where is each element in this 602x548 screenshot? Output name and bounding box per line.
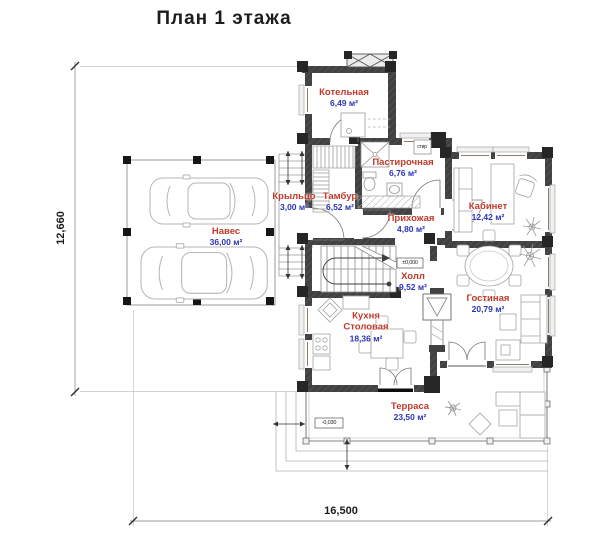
hallway-wardrobe bbox=[358, 196, 420, 208]
boiler-equipment bbox=[341, 113, 390, 137]
dimension-left: 12,660 bbox=[55, 211, 67, 245]
study-furniture bbox=[454, 164, 541, 236]
tv-stand bbox=[496, 340, 520, 360]
outdoor-sofa-corner bbox=[496, 392, 520, 406]
elevation-mark-hall: ±0,000 bbox=[402, 260, 418, 266]
desk bbox=[491, 164, 514, 224]
sink bbox=[387, 183, 402, 196]
plant bbox=[445, 401, 461, 416]
car-top-view bbox=[141, 244, 267, 303]
sofa bbox=[521, 295, 547, 343]
plant bbox=[523, 217, 541, 236]
floor-plan-page: План 1 этажа Котельная 6,49 м² Пастирочн… bbox=[0, 0, 602, 548]
terrace-furniture bbox=[445, 392, 545, 438]
desk-chair bbox=[514, 173, 538, 199]
dimension-bottom: 16,500 bbox=[324, 505, 358, 517]
fireplace bbox=[423, 288, 451, 352]
page-title: План 1 этажа bbox=[156, 8, 291, 30]
kitchen-furniture bbox=[313, 296, 416, 370]
dining-table bbox=[359, 316, 416, 370]
carport bbox=[123, 156, 275, 305]
outdoor-chair bbox=[469, 413, 491, 435]
kitchen-cabinet bbox=[313, 356, 330, 370]
shower-tray bbox=[361, 142, 389, 167]
sofa bbox=[454, 168, 472, 232]
toilet bbox=[363, 172, 376, 191]
dining-table-round bbox=[457, 230, 521, 301]
elevation-mark-terrace: -0,030 bbox=[322, 420, 336, 426]
washer-label: стир bbox=[417, 144, 427, 150]
car-top-view bbox=[150, 175, 268, 227]
outdoor-table bbox=[499, 410, 517, 426]
coffee-table bbox=[500, 314, 516, 330]
stove bbox=[313, 334, 330, 354]
staircase bbox=[321, 246, 396, 292]
kitchen-door-threshold bbox=[378, 389, 413, 393]
living-room-furniture bbox=[457, 230, 547, 360]
windows bbox=[299, 85, 555, 372]
tambour-closets bbox=[313, 146, 355, 212]
floor-plan-drawing bbox=[0, 0, 602, 548]
terrace-step-arrows bbox=[273, 422, 350, 471]
corner-sink-unit bbox=[318, 298, 342, 322]
kitchen-counter bbox=[343, 296, 369, 309]
